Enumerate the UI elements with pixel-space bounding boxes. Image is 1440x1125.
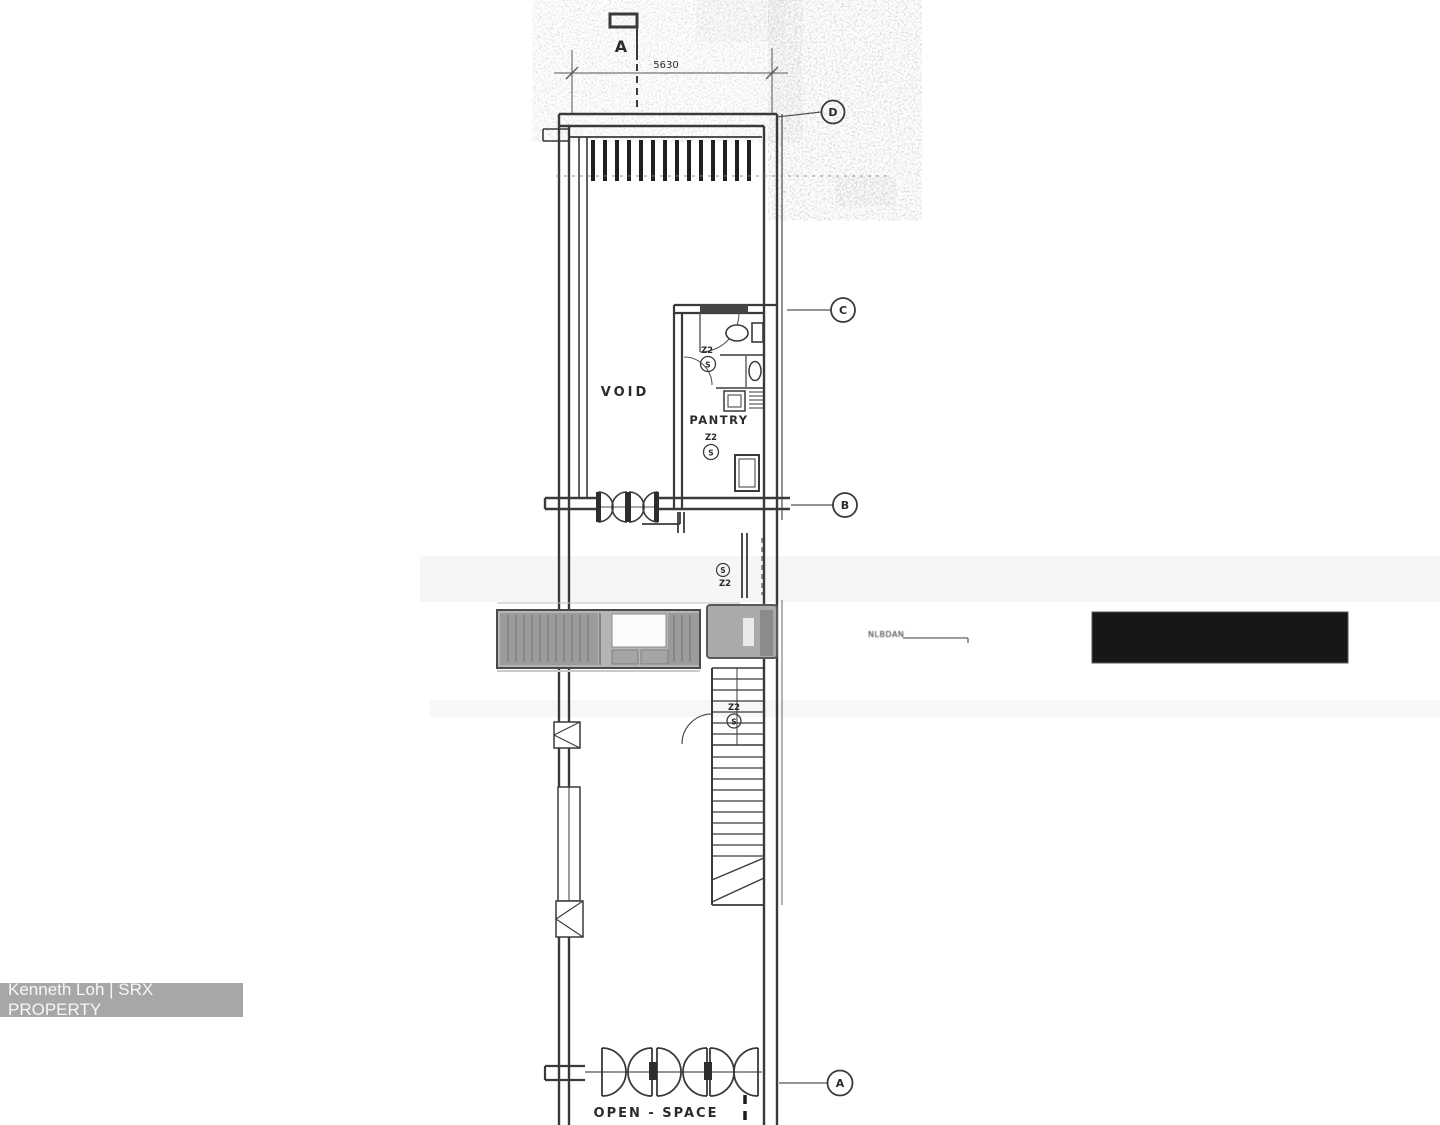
small-annotation: NLBDAN: [868, 630, 968, 643]
switch-label: S: [720, 566, 725, 575]
zone-label: Z2: [728, 703, 740, 713]
scan-noise: [545, 0, 915, 210]
section-marker-letter: A: [615, 37, 628, 56]
roof-louvers: [593, 140, 749, 181]
toilet-bowl-icon: [726, 323, 763, 342]
floorplan-drawing: A 5630: [0, 0, 1440, 1125]
zone-label: Z2: [705, 433, 717, 443]
void-label: VOID: [601, 385, 650, 400]
open-space-label: OPEN - SPACE: [594, 1106, 719, 1121]
pantry-label: PANTRY: [689, 413, 748, 427]
bifold-door: [596, 492, 659, 522]
switch-label: S: [731, 718, 736, 727]
appliance-icon: [735, 455, 759, 491]
grid-bubble-a: A: [836, 1077, 845, 1090]
basin-icon: [749, 362, 761, 381]
floorplan-page: A 5630: [0, 0, 1440, 1125]
switch-label: S: [708, 449, 713, 458]
watermark: Kenneth Loh | SRX PROPERTY: [0, 983, 243, 1017]
grid-bubble-d: D: [828, 106, 837, 119]
dimension-label: 5630: [653, 60, 678, 71]
grid-bubble-c: C: [839, 304, 847, 317]
small-annotation-text: NLBDAN: [868, 630, 904, 639]
zone-label: Z2: [719, 579, 731, 589]
zone-label: Z2: [701, 346, 713, 356]
switch-label: S: [705, 361, 710, 370]
stove-icon: [724, 391, 763, 411]
pantry-room: Z2 S PANTRY Z2 S: [674, 304, 777, 510]
counter-sketch: [497, 603, 777, 671]
redaction-block: [1092, 612, 1348, 663]
watermark-text: Kenneth Loh | SRX PROPERTY: [8, 980, 243, 1020]
grid-bubble-b: B: [841, 499, 849, 512]
